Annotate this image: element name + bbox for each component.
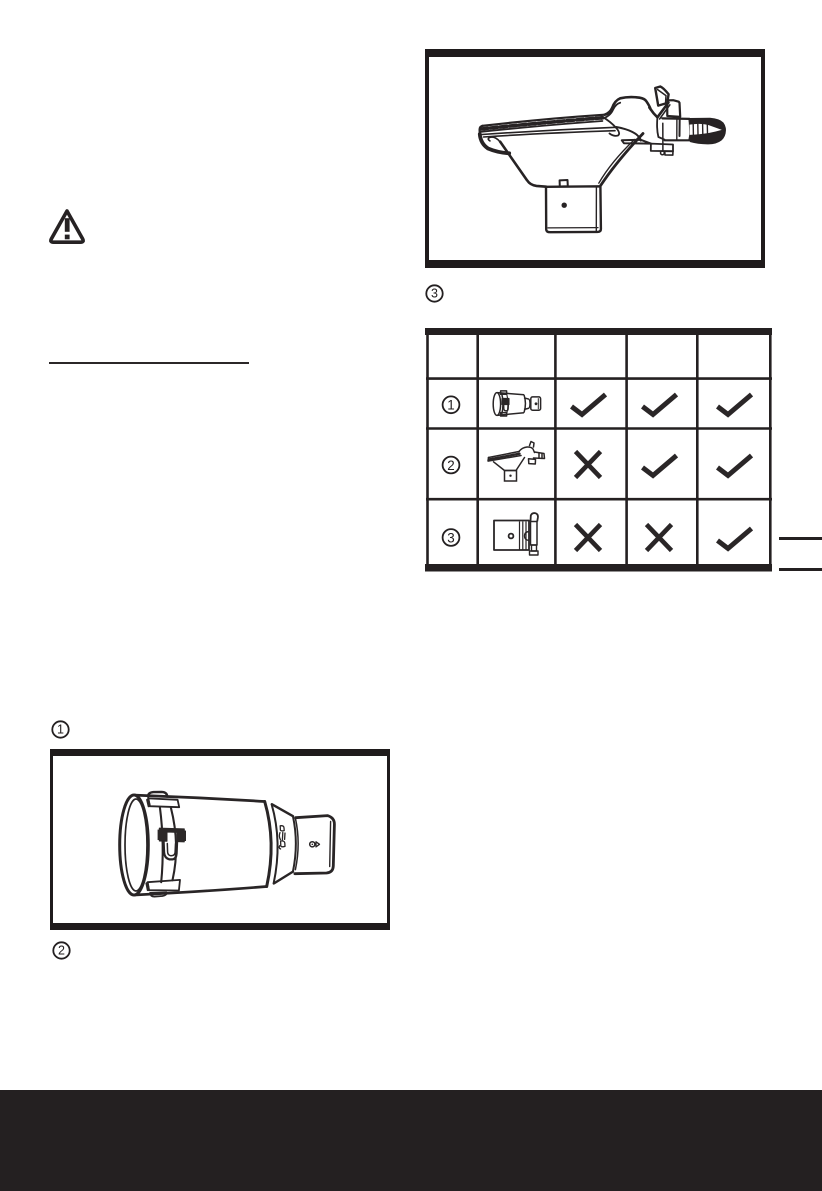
svg-text:3: 3 <box>447 530 454 545</box>
svg-text:1: 1 <box>57 723 64 737</box>
svg-text:2: 2 <box>447 458 454 473</box>
svg-text:1: 1 <box>447 398 454 413</box>
svg-text:3: 3 <box>431 287 438 301</box>
svg-text:2: 2 <box>58 944 65 958</box>
